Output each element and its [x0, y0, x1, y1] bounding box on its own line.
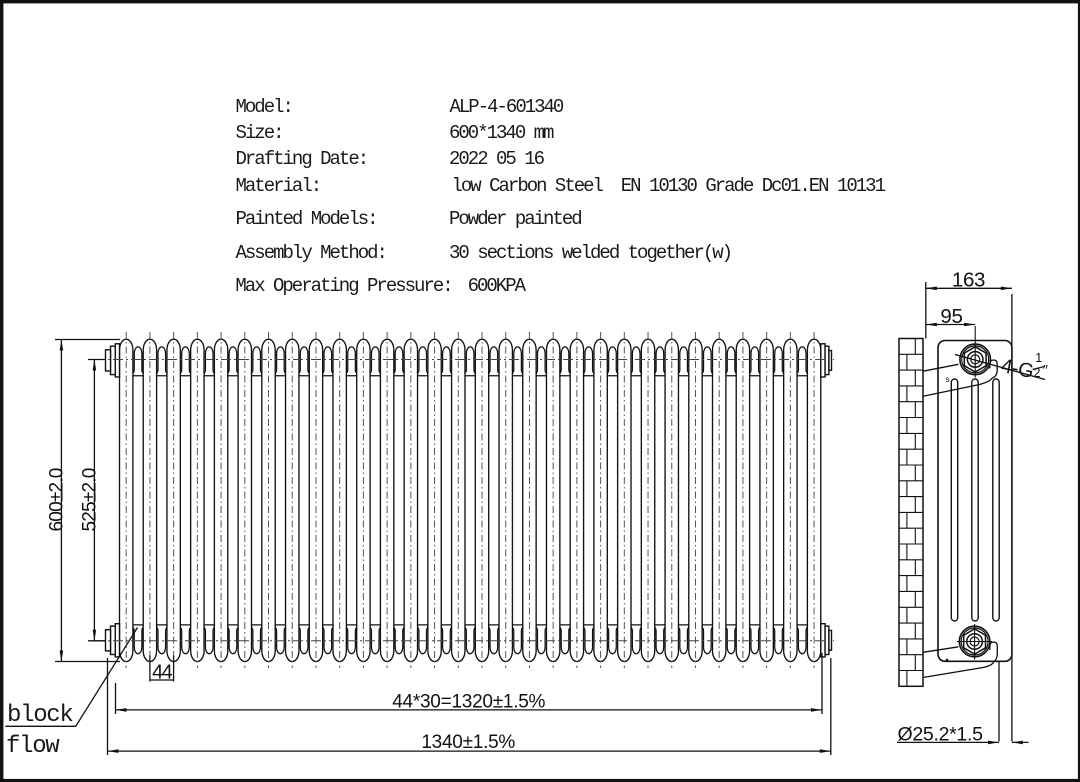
svg-text:163: 163 [952, 269, 985, 292]
svg-text:44: 44 [152, 662, 173, 684]
svg-text:Ø25.2*1.5: Ø25.2*1.5 [898, 724, 984, 746]
svg-text:525±2.0: 525±2.0 [79, 468, 100, 531]
svg-text:95: 95 [940, 305, 962, 328]
svg-text:600±2.0: 600±2.0 [47, 468, 68, 531]
svg-text:2: 2 [1034, 366, 1041, 380]
svg-text:44*30=1320±1.5%: 44*30=1320±1.5% [392, 691, 545, 712]
svg-text:″: ″ [1043, 363, 1048, 379]
svg-text:1: 1 [1035, 351, 1042, 365]
svg-text:s: s [946, 374, 950, 384]
svg-text:1340±1.5%: 1340±1.5% [421, 732, 515, 753]
